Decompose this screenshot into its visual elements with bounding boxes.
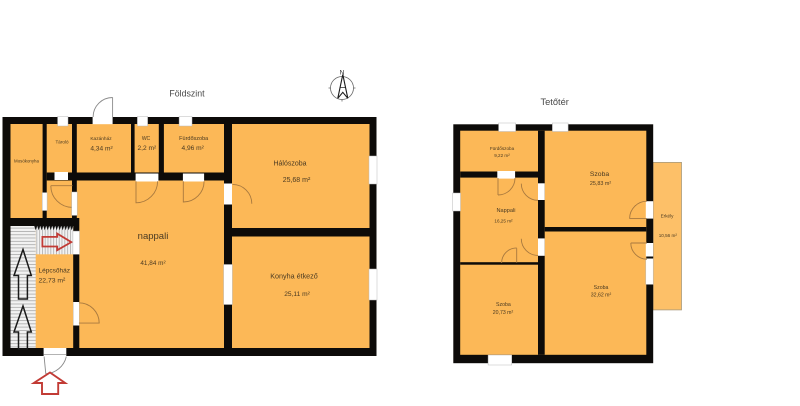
- svg-text:Lépcsőház: Lépcsőház: [39, 267, 70, 274]
- svg-text:Kazánház: Kazánház: [90, 136, 112, 142]
- svg-text:20,73 m²: 20,73 m²: [493, 310, 514, 316]
- svg-text:N: N: [340, 70, 345, 77]
- svg-text:25,68 m²: 25,68 m²: [283, 177, 311, 184]
- svg-text:nappali: nappali: [138, 231, 169, 242]
- svg-text:4,96 m²: 4,96 m²: [182, 145, 205, 152]
- svg-text:Földszint: Földszint: [169, 88, 205, 98]
- svg-text:16,25 m²: 16,25 m²: [494, 218, 513, 223]
- svg-text:41,84 m²: 41,84 m²: [140, 260, 165, 267]
- svg-text:Szoba: Szoba: [496, 302, 511, 308]
- svg-text:Nappali: Nappali: [497, 208, 516, 214]
- svg-text:25,83 m²: 25,83 m²: [590, 181, 611, 187]
- svg-text:Fürdőszoba: Fürdőszoba: [179, 136, 209, 142]
- svg-text:Konyha étkező: Konyha étkező: [270, 271, 318, 280]
- svg-text:Erkély: Erkély: [661, 214, 674, 219]
- svg-text:Mosókonyha: Mosókonyha: [14, 159, 39, 164]
- svg-text:32,62 m²: 32,62 m²: [591, 292, 612, 298]
- svg-text:Szoba: Szoba: [594, 285, 609, 291]
- svg-text:Szoba: Szoba: [590, 171, 609, 178]
- svg-text:Tároló: Tároló: [55, 140, 68, 145]
- svg-text:Hálószoba: Hálószoba: [273, 161, 306, 168]
- svg-text:25,11 m²: 25,11 m²: [284, 291, 310, 298]
- svg-text:10,56 m²: 10,56 m²: [659, 233, 678, 238]
- svg-text:2,2 m²: 2,2 m²: [137, 145, 156, 152]
- svg-text:4,34 m²: 4,34 m²: [90, 145, 113, 152]
- svg-text:Fürdőszoba: Fürdőszoba: [490, 146, 515, 151]
- svg-text:9,22 m²: 9,22 m²: [494, 153, 510, 158]
- svg-text:22,73 m²: 22,73 m²: [39, 278, 67, 285]
- svg-text:Tetőtér: Tetőtér: [540, 97, 568, 107]
- svg-text:WC: WC: [142, 136, 151, 142]
